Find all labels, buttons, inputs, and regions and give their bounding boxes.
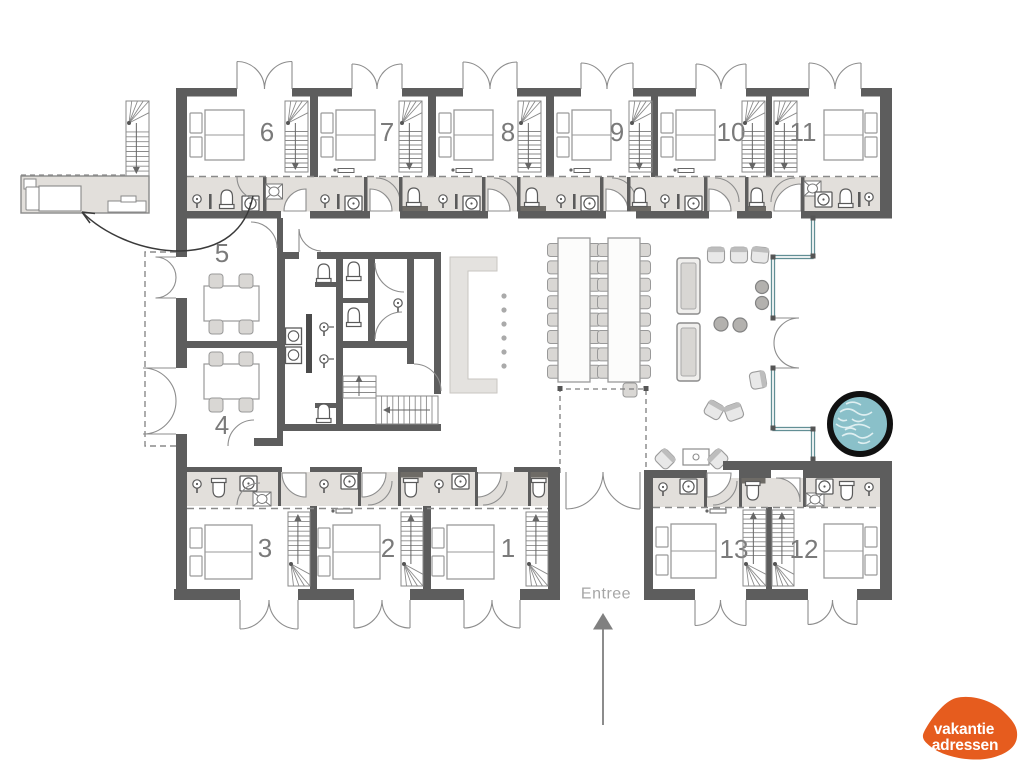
svg-text:9: 9 (610, 117, 624, 147)
svg-text:6: 6 (260, 117, 274, 147)
svg-text:7: 7 (380, 117, 394, 147)
svg-text:1: 1 (501, 533, 515, 563)
svg-text:3: 3 (258, 533, 272, 563)
svg-text:10: 10 (717, 117, 746, 147)
svg-text:12: 12 (790, 534, 819, 564)
svg-text:13: 13 (720, 534, 749, 564)
svg-text:Entree: Entree (581, 586, 631, 603)
svg-text:vakantie: vakantie (934, 721, 995, 738)
svg-text:8: 8 (501, 117, 515, 147)
svg-text:2: 2 (381, 533, 395, 563)
svg-text:5: 5 (215, 238, 229, 268)
svg-text:4: 4 (215, 410, 229, 440)
svg-text:11: 11 (790, 117, 817, 147)
svg-text:adressen: adressen (932, 737, 998, 754)
